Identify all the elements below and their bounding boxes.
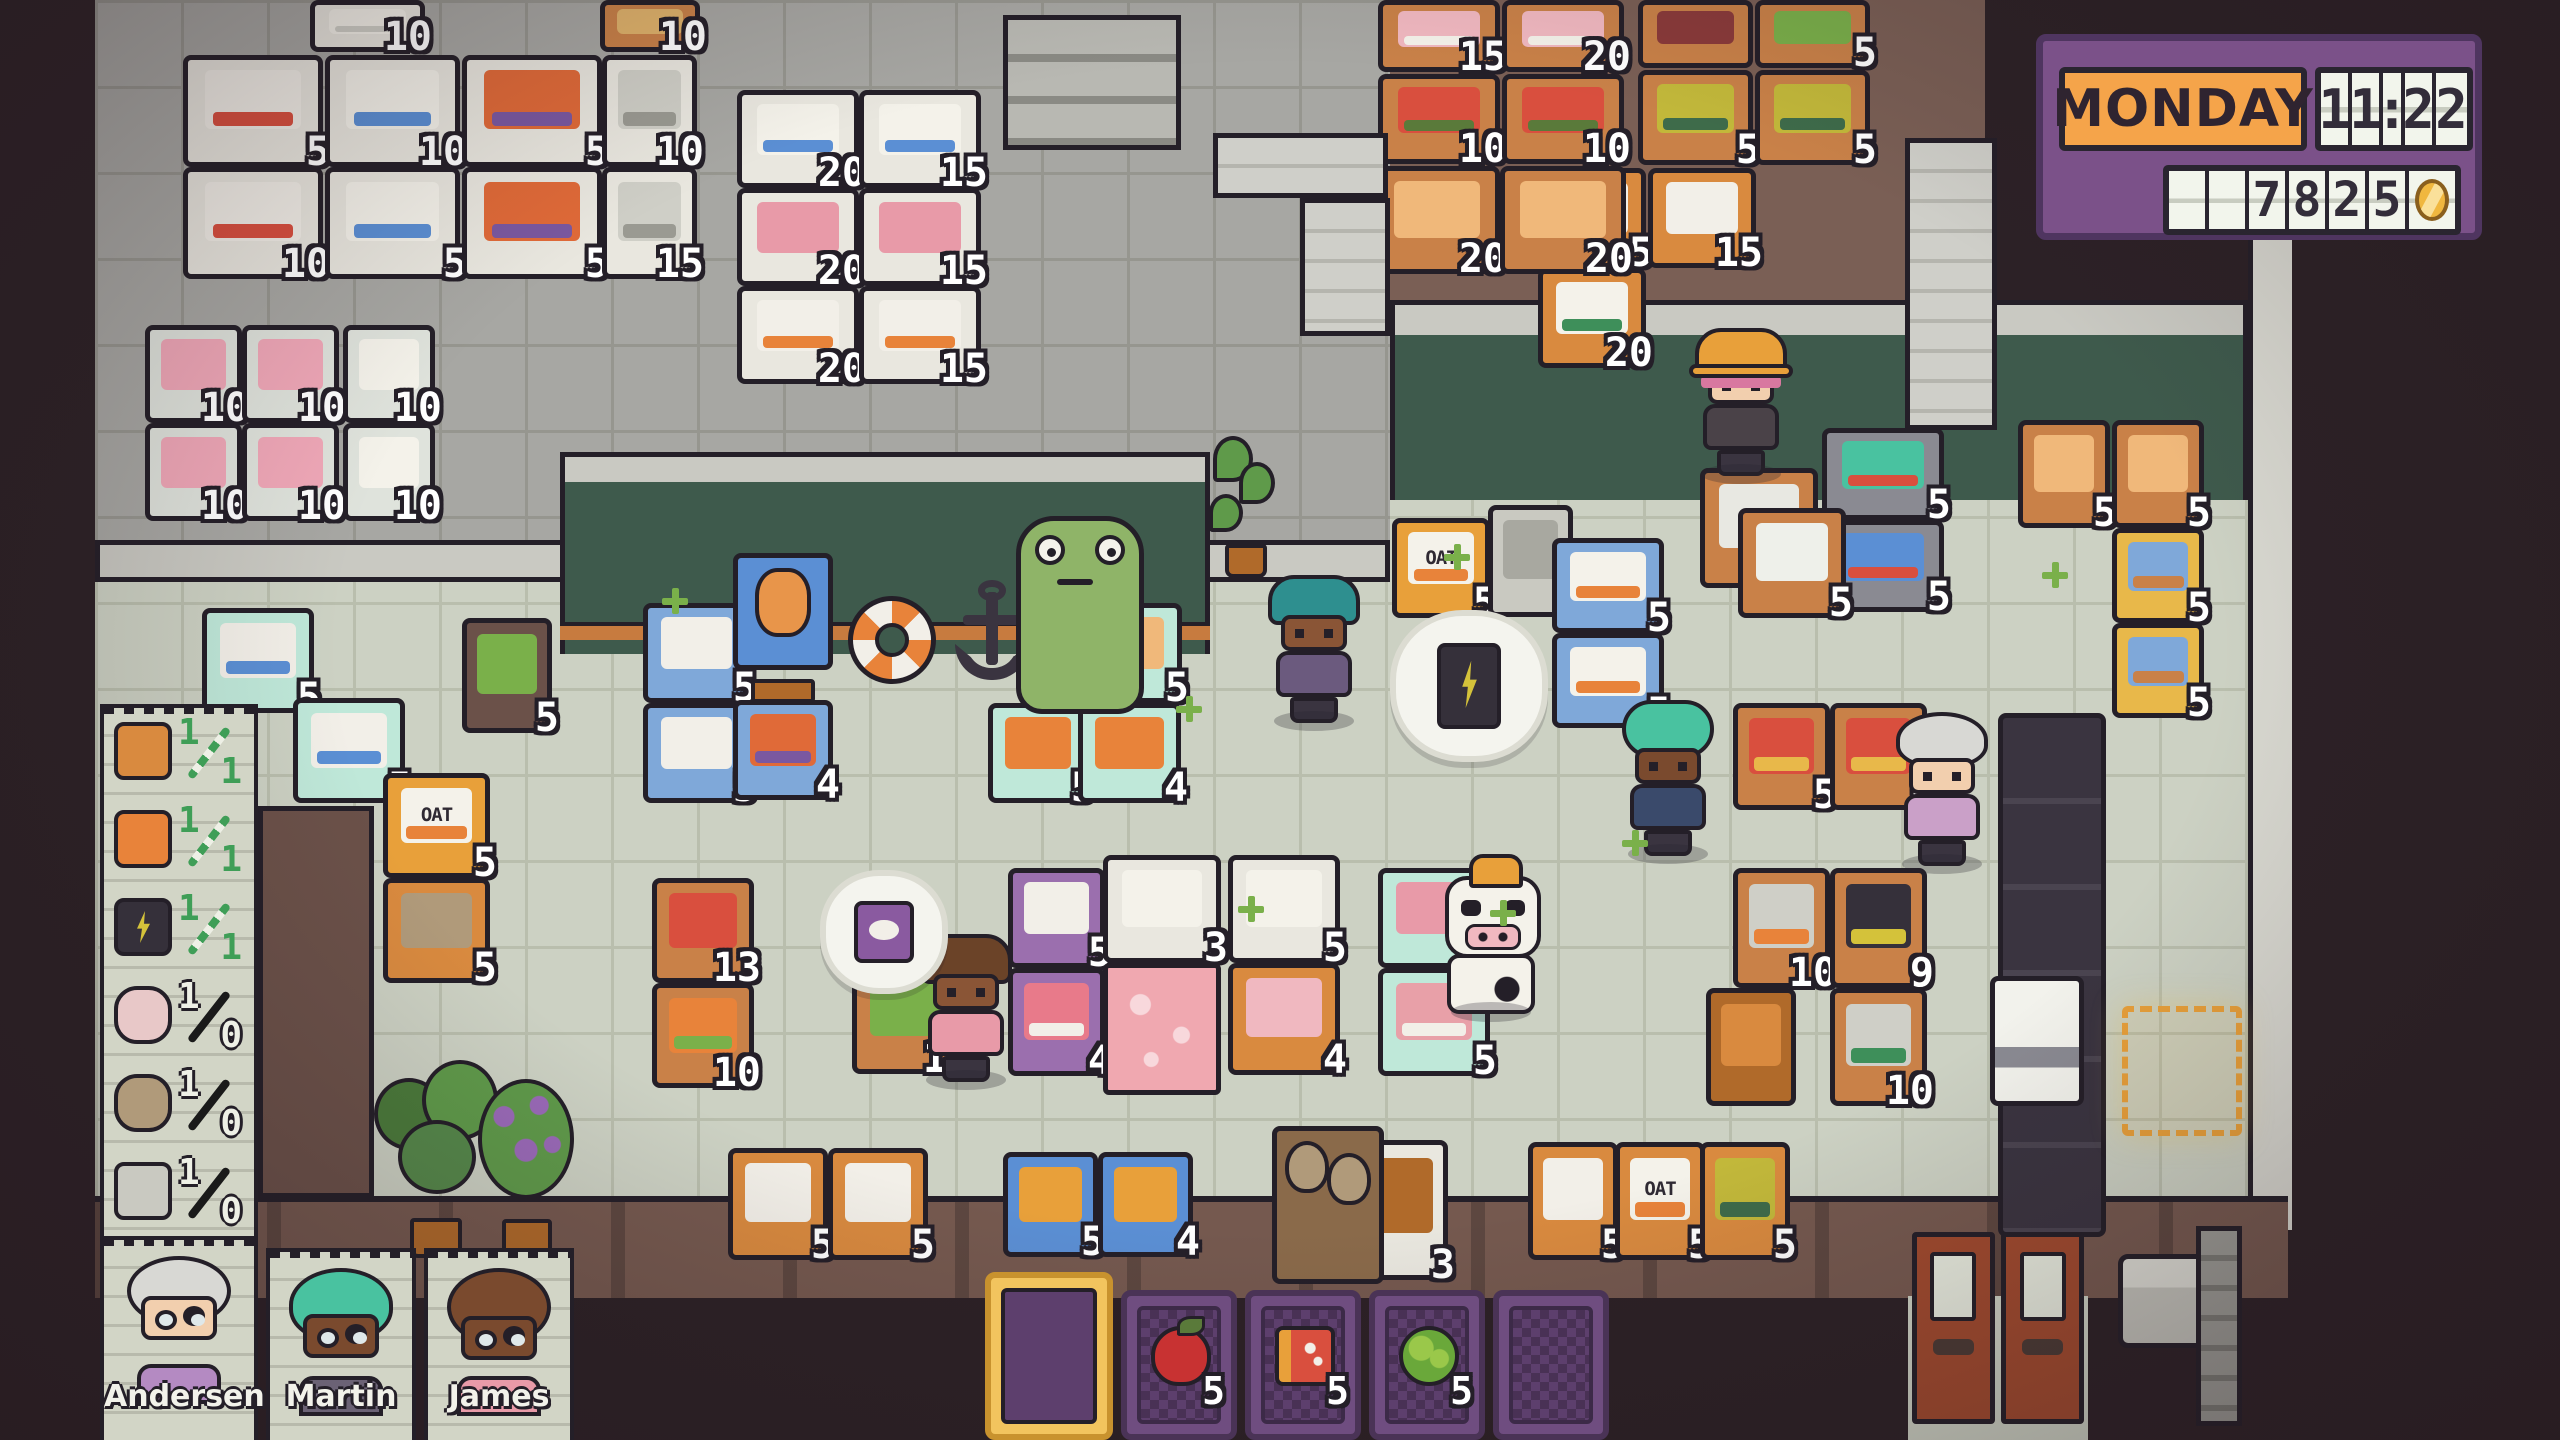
- water-bottles-item: [1756, 523, 1829, 581]
- item-progress: 10: [178, 1068, 240, 1140]
- money-digit: 5: [2369, 171, 2409, 229]
- stock-count: 15: [1459, 37, 1507, 77]
- stock-count: 5: [473, 948, 497, 988]
- grey-wall-block: [1905, 138, 1997, 430]
- speech-bubble: [1390, 610, 1548, 762]
- stock-count: 15: [940, 251, 988, 291]
- pickle-jars[interactable]: 5: [1755, 70, 1870, 165]
- sparkle-icon: [1444, 544, 1470, 570]
- red-crates-item: [1657, 11, 1735, 45]
- cracker-display[interactable]: 5: [1528, 1142, 1618, 1260]
- pickle-jar[interactable]: 5: [1700, 1142, 1790, 1260]
- clock-digit: 2: [2436, 73, 2467, 145]
- stock-count: 10: [298, 388, 346, 428]
- pot-display-item: [1503, 520, 1559, 579]
- peaches[interactable]: 20: [1374, 166, 1500, 274]
- peaches-item: [1520, 181, 1606, 238]
- door-left[interactable]: [1912, 1232, 1995, 1424]
- freezer-jar-item: [346, 70, 439, 129]
- freezer-reliquary-item: [484, 70, 580, 129]
- day-label: MONDAY: [2059, 67, 2307, 151]
- stock-count: 5: [1647, 598, 1671, 638]
- stock-count: 5: [1773, 1225, 1797, 1265]
- fish-fridge-item: [661, 717, 733, 769]
- shopping-list-item: 11: [104, 708, 254, 796]
- stock-count: 10: [1583, 129, 1631, 169]
- stock-count: 10: [1886, 1071, 1934, 1111]
- stock-count: 10: [282, 244, 330, 284]
- item-progress: 11: [178, 892, 240, 964]
- oat-box-item: OAT: [1630, 1158, 1689, 1221]
- pasta-boxes-item: [2128, 542, 2189, 591]
- carrot-cans-item: [1749, 884, 1813, 948]
- milk-bottle-icon: [114, 986, 172, 1044]
- freezer-mince-item: [757, 202, 840, 253]
- freezer-shrimp[interactable]: 20: [737, 286, 859, 384]
- pickle-jars-item: [1657, 84, 1735, 133]
- milk-crate[interactable]: 5: [728, 1148, 828, 1260]
- jug-fridge-item: [359, 339, 420, 390]
- fried-chicken-icon: [114, 810, 172, 868]
- lettuce-crate[interactable]: 5: [1755, 0, 1870, 68]
- stock-count: 4: [1323, 1040, 1347, 1080]
- freezer-mince[interactable]: 15: [859, 188, 981, 286]
- stock-count: 15: [656, 244, 704, 284]
- stock-count: 4: [816, 765, 840, 805]
- customer-card-andersen[interactable]: Andersen: [100, 1236, 258, 1440]
- freezer-snack-box[interactable]: 5: [183, 55, 323, 167]
- stock-count: 20: [1585, 239, 1633, 279]
- fish-freezer[interactable]: 5: [202, 608, 314, 713]
- customer-card-james[interactable]: James: [424, 1248, 574, 1440]
- stock-count: 4: [1176, 1222, 1200, 1262]
- hotbar-slot-5[interactable]: [1493, 1290, 1609, 1440]
- milk-bottles[interactable]: 15: [1378, 0, 1500, 72]
- freezer-reliquary-item: [484, 182, 580, 241]
- bread-loaves-item: [2128, 435, 2189, 492]
- stock-count: 10: [659, 17, 707, 57]
- stock-count: 15: [940, 349, 988, 389]
- green-cans[interactable]: 10: [1830, 988, 1927, 1106]
- tomatoes[interactable]: 10: [1378, 74, 1500, 164]
- stock-count: 10: [656, 132, 704, 172]
- pickle-jar-item: [1715, 1158, 1774, 1221]
- freezer-mince-item: [879, 202, 962, 253]
- oat-box-item: OAT: [401, 788, 473, 843]
- barrel-item: [1721, 1004, 1780, 1067]
- avatar: [447, 1268, 551, 1364]
- freezer-reliquary[interactable]: 5: [462, 167, 602, 279]
- bread-loaves[interactable]: 5: [2112, 420, 2204, 528]
- shopping-list-item: 10: [104, 972, 254, 1060]
- sparkle-icon: [1622, 830, 1648, 856]
- stock-count: 10: [419, 132, 467, 172]
- eyes: [1649, 762, 1687, 771]
- torso: [1630, 784, 1706, 830]
- soap-icon: [854, 901, 914, 964]
- bread-crate-item: [1114, 1167, 1177, 1222]
- salmon-fridge-item: [161, 437, 225, 488]
- freezer-snack-box[interactable]: 10: [183, 167, 323, 279]
- stock-count: 10: [1459, 129, 1507, 169]
- jug-fridge-item: [359, 437, 420, 488]
- freezer-shrimp-item: [879, 300, 962, 351]
- carrot-cans[interactable]: 10: [1733, 868, 1830, 988]
- clock-digit: 1: [2321, 73, 2352, 145]
- toilet-paper-item: [1024, 882, 1088, 934]
- pickle-jars[interactable]: 5: [1638, 70, 1753, 165]
- entrance-doors[interactable]: [1912, 1232, 2084, 1424]
- red-crates[interactable]: [1638, 0, 1753, 68]
- cooking-pot-icon: [114, 1162, 172, 1220]
- bread-crate[interactable]: 4: [1098, 1152, 1193, 1257]
- right-wall: [2248, 160, 2292, 1230]
- milk-jugs[interactable]: 3: [1103, 855, 1221, 963]
- sparkle-icon: [1176, 696, 1202, 722]
- freezer-jar[interactable]: 10: [325, 55, 460, 167]
- stock-count: 20: [1583, 37, 1631, 77]
- shopping-list-item: 10: [104, 1148, 254, 1236]
- bread-loaves-item: [2034, 435, 2095, 492]
- soap[interactable]: 4: [1008, 968, 1105, 1076]
- freezer-mince[interactable]: 20: [737, 188, 859, 286]
- player[interactable]: [1268, 575, 1360, 723]
- freezer-shrimp[interactable]: 15: [859, 286, 981, 384]
- stock-count: 5: [1829, 583, 1853, 623]
- customer-name: Martin: [270, 1379, 412, 1414]
- energy-can-icon: [114, 898, 172, 956]
- cow-hat: [1469, 854, 1523, 888]
- cash-register[interactable]: [1990, 976, 2084, 1106]
- coffee-table: [1272, 1126, 1384, 1284]
- bread-crate-item: [1019, 1167, 1082, 1222]
- sparkle-icon: [2042, 562, 2068, 588]
- eyes: [947, 988, 985, 997]
- game-screen: 5105105510151010101010101010201520152015…: [0, 0, 2560, 1440]
- door-right[interactable]: [2001, 1232, 2084, 1424]
- umbrella-rack[interactable]: 5: [1822, 428, 1944, 520]
- hat-brim: [1689, 364, 1793, 378]
- cereal-boxes-item: [1570, 552, 1646, 601]
- croissants-item: [1005, 717, 1072, 769]
- tomatoes[interactable]: 10: [1502, 74, 1624, 164]
- avatar-face: [141, 1296, 217, 1340]
- stock-count: 13: [713, 948, 761, 988]
- stock-count: 5: [535, 698, 559, 738]
- lifebuoy-icon: [848, 596, 936, 684]
- freezer-jar[interactable]: 20: [737, 90, 859, 188]
- money-digit: 2: [2329, 171, 2369, 229]
- pink-display-stand: [1103, 963, 1221, 1095]
- coin-icon: [2415, 179, 2449, 221]
- brown-wall: [258, 806, 374, 1198]
- npc-builder[interactable]: [1695, 328, 1787, 476]
- tomato-crate-item: [669, 893, 737, 948]
- stock-count: 15: [1715, 233, 1763, 273]
- carrot-crate[interactable]: 10: [652, 983, 754, 1088]
- jug-fridge[interactable]: 10: [343, 423, 435, 521]
- freezer-reliquary[interactable]: 5: [462, 55, 602, 167]
- cracker-display-item: [1543, 1158, 1602, 1221]
- cracker-boxes-item: [1749, 718, 1813, 774]
- face: [1909, 758, 1975, 794]
- stock-count: 5: [2187, 588, 2211, 628]
- jug-shelf[interactable]: 10: [310, 0, 425, 52]
- stock-count: 5: [1473, 1041, 1497, 1081]
- item-count: 5: [1326, 1372, 1349, 1410]
- hotbar-slot-2[interactable]: 5: [1121, 1290, 1237, 1440]
- stock-count: 5: [1927, 485, 1951, 525]
- hotbar: 555: [985, 1272, 1609, 1440]
- relic-box-item: [750, 714, 817, 766]
- freezer-shrimp-item: [757, 300, 840, 351]
- potatoes-icon: [114, 1074, 172, 1132]
- bread-box-icon: [114, 722, 172, 780]
- salmon-fridge[interactable]: 10: [242, 325, 339, 423]
- green-cans-item: [1846, 1004, 1910, 1067]
- hotbar-slot-3[interactable]: 5: [1245, 1290, 1361, 1440]
- freezer-snack-box-item: [205, 182, 301, 241]
- potato-sack[interactable]: 5: [383, 878, 490, 983]
- oat-box[interactable]: OAT5: [383, 773, 490, 878]
- torso: [928, 1010, 1004, 1056]
- sparkle-icon: [662, 588, 688, 614]
- paper-towels-item: [1666, 182, 1739, 234]
- torso: [1904, 794, 1980, 840]
- grey-wall-block: [1300, 198, 1390, 336]
- clock-digit: 2: [2405, 73, 2436, 145]
- milk-bottles[interactable]: 20: [1502, 0, 1624, 72]
- shopping-basket[interactable]: [2118, 1254, 2208, 1348]
- freezer-jar[interactable]: 5: [325, 167, 460, 279]
- stock-count: 5: [1323, 928, 1347, 968]
- energy-cans-item: [1846, 884, 1910, 948]
- avatar-face: [303, 1314, 379, 1358]
- stock-count: 10: [298, 486, 346, 526]
- money-counter: 7825: [2163, 165, 2461, 235]
- salmon-fridge[interactable]: 10: [242, 423, 339, 521]
- stock-count: 5: [473, 843, 497, 883]
- oat-box[interactable]: OAT5: [1615, 1142, 1705, 1260]
- toilet-paper[interactable]: 5: [1008, 868, 1105, 968]
- face: [933, 974, 999, 1010]
- item-count: 5: [1202, 1372, 1225, 1410]
- energy-can-icon: [1437, 643, 1501, 730]
- turtle-statue: [1016, 516, 1144, 714]
- lotion-bottles[interactable]: 4: [1228, 963, 1340, 1075]
- freezer-snack-box-item: [205, 70, 301, 129]
- money-digit: [2169, 171, 2209, 229]
- customer-name: James: [428, 1379, 570, 1414]
- peaches-item: [1394, 181, 1480, 238]
- freezer-grey-fish[interactable]: 15: [602, 167, 697, 279]
- clock: 11:22: [2315, 67, 2473, 151]
- stock-count: 4: [1164, 768, 1188, 808]
- cereal-boxes-item: [1570, 647, 1646, 696]
- stock-count: 5: [1853, 130, 1877, 170]
- energy-cans[interactable]: 9: [1830, 868, 1927, 988]
- eyes: [1923, 772, 1961, 781]
- glasses-icon: [155, 1310, 177, 1330]
- fish-fridge-item: [661, 617, 733, 669]
- money-digit: 8: [2289, 171, 2329, 229]
- bread-crate[interactable]: 5: [1003, 1152, 1098, 1257]
- potato-sack-item: [401, 893, 473, 948]
- croissants-item: [1095, 717, 1164, 769]
- sparkle-icon: [1490, 900, 1516, 926]
- shopping-list-item: 10: [104, 1060, 254, 1148]
- lotion-bottles-item: [1246, 978, 1322, 1037]
- sparkle-icon: [1238, 896, 1264, 922]
- freezer-jar-item: [879, 104, 962, 155]
- pickle-jars-item: [1774, 84, 1852, 133]
- salmon-fridge-item: [258, 437, 322, 488]
- freezer-jar[interactable]: 15: [859, 90, 981, 188]
- canned-greens[interactable]: 20: [1538, 268, 1646, 368]
- item-count: 5: [1450, 1372, 1473, 1410]
- bread-shelf[interactable]: 10: [600, 0, 700, 52]
- grey-wall-block: [1213, 133, 1388, 198]
- stock-count: 10: [713, 1053, 761, 1093]
- fish-freezer-item: [220, 623, 296, 678]
- cracker-boxes[interactable]: 5: [1733, 703, 1830, 810]
- shopping-list-item: 11: [104, 884, 254, 972]
- plant-crate[interactable]: 5: [462, 618, 552, 733]
- avatar-face: [461, 1316, 537, 1360]
- pasta-boxes-item: [2128, 637, 2189, 686]
- item-progress: 10: [178, 1156, 240, 1228]
- peaches[interactable]: 20: [1500, 166, 1626, 274]
- freezer-grey-fish-item: [618, 70, 681, 129]
- oat-box[interactable]: OAT5: [1392, 518, 1490, 618]
- croissants[interactable]: 4: [1078, 703, 1181, 803]
- customer-name: Andersen: [104, 1379, 254, 1414]
- freezer-jar-item: [757, 104, 840, 155]
- stock-count: 3: [1204, 928, 1228, 968]
- glasses-icon: [317, 1328, 339, 1348]
- customer-card-martin[interactable]: Martin: [266, 1248, 416, 1440]
- pasta-boxes[interactable]: 5: [2112, 623, 2204, 718]
- eyes: [1295, 629, 1333, 638]
- stock-count: 5: [1853, 33, 1877, 73]
- glasses-icon: [475, 1330, 497, 1350]
- plant-crate-item: [477, 634, 536, 695]
- stock-count: 5: [911, 1225, 935, 1265]
- stock-count: 10: [394, 486, 442, 526]
- hotbar-slot-1[interactable]: [985, 1272, 1113, 1440]
- npc-andersen[interactable]: [1896, 712, 1988, 866]
- stock-count: 9: [1910, 953, 1934, 993]
- milk-crate-item: [745, 1163, 812, 1222]
- avatar: [127, 1256, 231, 1352]
- salmon-fridge-item: [161, 339, 225, 390]
- hud-panel: MONDAY 11:22 7825: [2036, 34, 2482, 240]
- stock-count: 20: [1605, 333, 1653, 373]
- milk-crate[interactable]: 5: [828, 1148, 928, 1260]
- milk-crate-item: [845, 1163, 912, 1222]
- freezer-grey-fish[interactable]: 10: [602, 55, 697, 167]
- paper-towels[interactable]: 15: [1648, 168, 1756, 268]
- shopping-list-item: 11: [104, 796, 254, 884]
- torso: [1276, 651, 1352, 697]
- fish-freezer-item: [311, 713, 387, 768]
- avatar: [289, 1268, 393, 1364]
- croissants[interactable]: 5: [988, 703, 1088, 803]
- water-bottles[interactable]: 5: [1738, 508, 1846, 618]
- wall-cap: [1390, 300, 2248, 340]
- money-digit: 7: [2249, 171, 2289, 229]
- garment-rack-item: [1842, 533, 1925, 581]
- pasta-boxes[interactable]: 5: [2112, 528, 2204, 623]
- placement-zone: [2122, 1006, 2242, 1136]
- face: [1281, 615, 1347, 651]
- shopping-list-panel: 111111101010: [100, 704, 258, 1238]
- money-digit: [2209, 171, 2249, 229]
- salmon-fridge[interactable]: 10: [145, 423, 242, 521]
- bread-loaves[interactable]: 5: [2018, 420, 2110, 528]
- milk-jugs-item: [1122, 870, 1202, 927]
- hotbar-slot-4[interactable]: 5: [1369, 1290, 1485, 1440]
- face: [1635, 748, 1701, 784]
- torso: [1703, 404, 1779, 450]
- freezer-jar-item: [346, 182, 439, 241]
- item-progress: 10: [178, 980, 240, 1052]
- storage-rack: [1003, 15, 1181, 150]
- cereal-boxes[interactable]: 5: [1552, 538, 1664, 633]
- checkout-conveyor[interactable]: [1998, 713, 2106, 1237]
- salmon-fridge-item: [258, 339, 322, 390]
- relic-box[interactable]: 4: [733, 700, 833, 800]
- item-progress: 11: [178, 804, 240, 876]
- tomato-crate[interactable]: 13: [652, 878, 754, 983]
- lavender-plant: [472, 1073, 586, 1257]
- speech-bubble: [820, 870, 948, 994]
- lettuce-crate-item: [1774, 11, 1852, 45]
- salmon-fridge[interactable]: 10: [145, 325, 242, 423]
- stock-count: 5: [2187, 493, 2211, 533]
- bust-statue: [733, 553, 833, 703]
- stock-count: 10: [394, 388, 442, 428]
- stock-count: 10: [384, 17, 432, 57]
- stock-count: 5: [2187, 683, 2211, 723]
- barrel[interactable]: [1706, 988, 1796, 1106]
- canned-greens-item: [1556, 282, 1629, 334]
- jug-fridge[interactable]: 10: [343, 325, 435, 423]
- carrot-crate-item: [669, 998, 737, 1053]
- umbrella-rack-item: [1842, 441, 1925, 489]
- item-progress: 11: [178, 716, 240, 788]
- stock-count: 5: [1927, 577, 1951, 617]
- brick-column: [2196, 1226, 2242, 1426]
- stock-count: 15: [940, 153, 988, 193]
- freezer-grey-fish-item: [618, 182, 681, 241]
- soap-item: [1024, 983, 1088, 1040]
- npc-cow[interactable]: [1445, 876, 1537, 1014]
- potted-plant: [1205, 436, 1285, 578]
